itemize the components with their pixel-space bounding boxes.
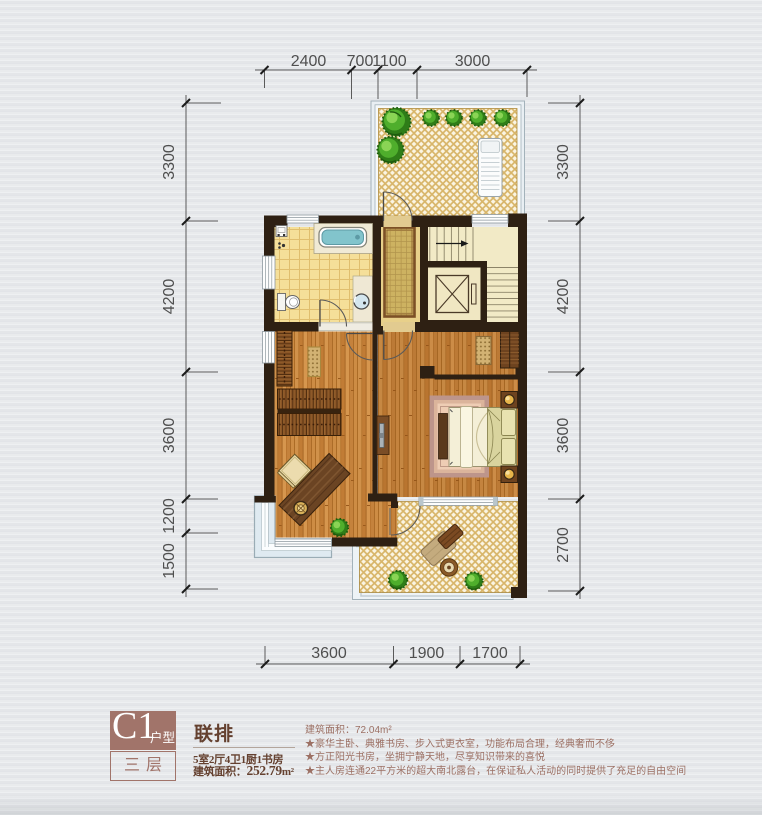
svg-text:1700: 1700: [472, 645, 508, 662]
svg-text:4200: 4200: [161, 279, 178, 315]
svg-text:3600: 3600: [555, 418, 572, 454]
svg-text:1900: 1900: [409, 645, 445, 662]
svg-text:1100: 1100: [372, 53, 407, 70]
svg-text:3300: 3300: [555, 144, 572, 180]
svg-text:4200: 4200: [555, 279, 572, 315]
svg-text:2400: 2400: [291, 53, 327, 70]
svg-text:1500: 1500: [161, 543, 178, 579]
svg-text:1200: 1200: [161, 498, 178, 534]
svg-text:3300: 3300: [161, 144, 178, 180]
svg-text:3600: 3600: [311, 645, 347, 662]
svg-text:2700: 2700: [555, 527, 572, 563]
svg-text:3600: 3600: [161, 418, 178, 454]
svg-text:700: 700: [347, 53, 374, 70]
svg-text:3000: 3000: [455, 53, 491, 70]
